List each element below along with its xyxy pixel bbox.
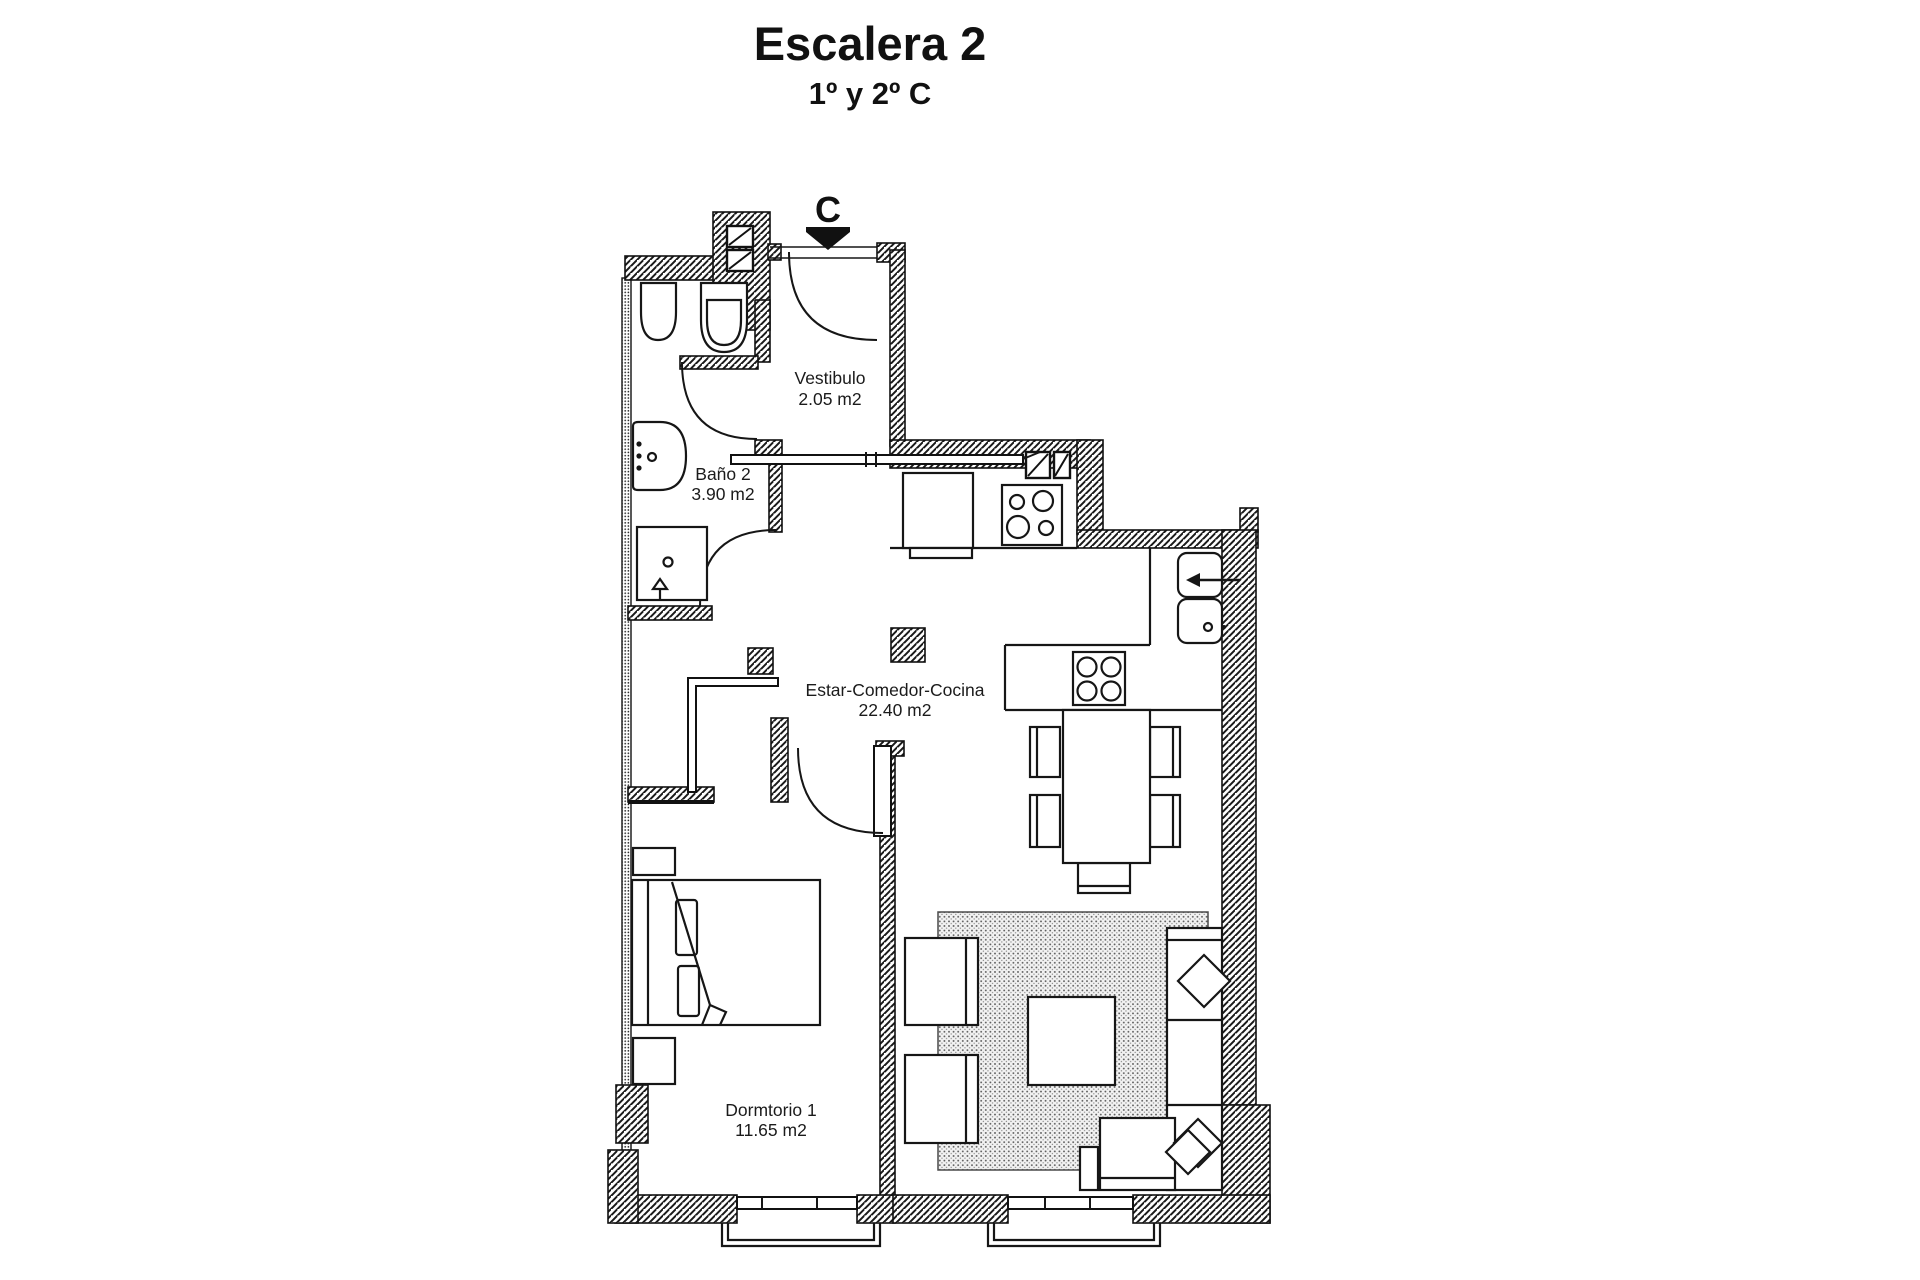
pillar <box>748 648 773 674</box>
living-furniture <box>905 912 1230 1190</box>
wall-segment <box>680 356 758 369</box>
bidet-icon <box>641 283 676 340</box>
bathroom-lower-door-arc <box>700 530 776 606</box>
entrance-marker: C <box>806 189 850 250</box>
entrance-arrow-bar <box>806 227 850 232</box>
window <box>1008 1197 1133 1209</box>
pillar <box>891 628 925 662</box>
room-area-dormitorio: 11.65 m2 <box>735 1120 807 1140</box>
bedroom-furniture <box>632 848 820 1084</box>
dining-chair <box>1150 795 1180 847</box>
sink-dot <box>1222 625 1226 629</box>
wall-segment <box>1077 440 1103 534</box>
window <box>737 1197 857 1209</box>
wall-segment <box>1133 1195 1270 1223</box>
wall-segment <box>771 718 788 802</box>
window-sill <box>988 1223 1160 1246</box>
faucet-dot <box>636 441 641 446</box>
fridge-door <box>910 548 972 558</box>
wall-segment <box>628 606 712 620</box>
sofa-armrest <box>1080 1147 1098 1190</box>
room-area-estar: 22.40 m2 <box>859 700 932 720</box>
wall-segment <box>1222 530 1256 1105</box>
party-wall <box>622 278 631 1195</box>
bedroom-door-leaf <box>874 746 891 836</box>
window-sill <box>722 1223 880 1246</box>
faucet-dot <box>636 465 641 470</box>
bed-icon <box>632 880 820 1025</box>
kitchen-sink-icon <box>1178 599 1222 643</box>
sofa-bottom-section <box>1100 1118 1175 1190</box>
wall-segment <box>1240 508 1258 532</box>
pillow <box>678 966 699 1016</box>
dining-chair <box>1030 727 1060 777</box>
wall-segment <box>893 1195 1008 1223</box>
bedroom-door-arc <box>798 748 883 833</box>
bathroom-fixtures <box>633 283 747 600</box>
floorplan-page: Escalera 2 1º y 2º C C <box>0 0 1920 1280</box>
wall-segment <box>755 300 770 362</box>
wall-segment <box>890 250 905 446</box>
room-label-dormitorio: Dormtorio 1 <box>725 1100 816 1120</box>
nightstand <box>633 848 675 875</box>
wall-segment <box>628 787 714 802</box>
title-block: Escalera 2 1º y 2º C <box>754 17 987 111</box>
wall-segment <box>608 1150 638 1223</box>
wall-segment <box>857 1195 895 1223</box>
room-label-bano2: Baño 2 <box>695 464 750 484</box>
entry-door-arc <box>789 252 877 340</box>
dining-chair <box>1150 727 1180 777</box>
wall-segment <box>625 256 715 280</box>
wall-segment <box>769 462 782 532</box>
bathroom-door-arc <box>682 362 757 439</box>
nightstand <box>633 1038 675 1084</box>
pilaster <box>616 1085 648 1143</box>
dining-chair <box>1030 795 1060 847</box>
page-subtitle: 1º y 2º C <box>809 76 932 111</box>
entrance-letter: C <box>815 189 841 230</box>
page-title: Escalera 2 <box>754 17 987 70</box>
dining-furniture <box>1030 710 1180 893</box>
floorplan-canvas: Escalera 2 1º y 2º C C <box>0 0 1920 1280</box>
wall-edge <box>628 800 714 804</box>
closet-partition <box>688 678 778 792</box>
faucet-dot <box>636 453 641 458</box>
room-area-vestibulo: 2.05 m2 <box>798 389 861 409</box>
room-label-vestibulo: Vestibulo <box>794 368 865 388</box>
coffee-table-icon <box>1028 997 1115 1085</box>
fridge-icon <box>903 473 973 548</box>
dining-chair <box>1078 863 1130 893</box>
room-area-bano2: 3.90 m2 <box>691 484 754 504</box>
dining-table-icon <box>1063 710 1150 863</box>
room-label-estar: Estar-Comedor-Cocina <box>806 680 985 700</box>
kitchen-fixtures <box>731 452 1240 710</box>
